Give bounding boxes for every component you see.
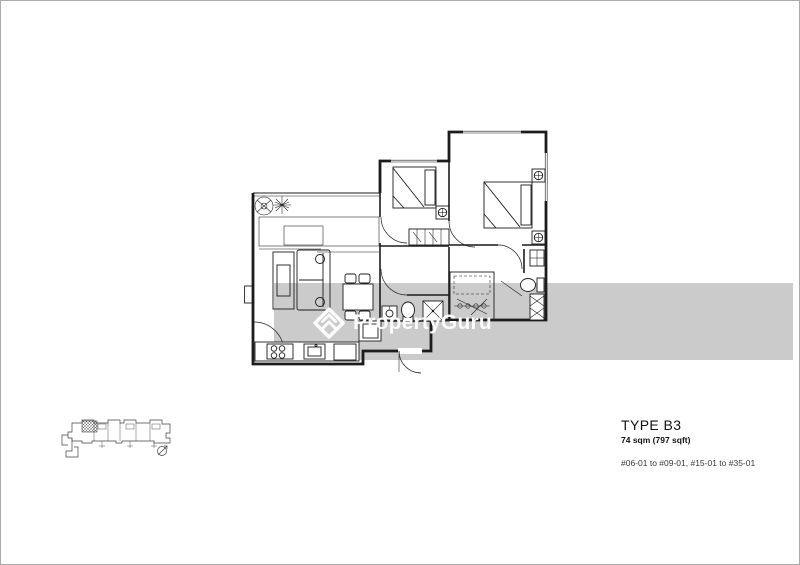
unit-floor-plan (244, 121, 558, 377)
bathroom-2 (382, 301, 443, 322)
bedside-table (532, 231, 545, 244)
bed (393, 167, 436, 208)
walk-in-wardrobe (450, 272, 494, 320)
shower-icon (530, 294, 544, 320)
chair (345, 311, 356, 320)
toilet-icon (402, 302, 415, 322)
shower-screen (501, 281, 522, 296)
dining-area (343, 274, 373, 320)
building-footprint (62, 420, 170, 457)
site-key-plan (58, 411, 178, 465)
bed (484, 182, 532, 228)
balcony (253, 193, 380, 252)
sofa (297, 250, 330, 310)
kitchen-counter (255, 342, 359, 361)
north-compass-icon (158, 446, 168, 456)
tv-console (273, 252, 294, 309)
master-bedroom (484, 169, 545, 244)
bedroom2-door-arc (381, 217, 407, 243)
chair (345, 274, 356, 283)
bedside-table (532, 169, 545, 182)
unit-location-highlight (82, 421, 97, 432)
master-door-arc (449, 221, 475, 247)
unit-info-block: TYPE B3 74 sqm (797 sqft) #06-01 to #09-… (621, 417, 800, 468)
bathroom2-door-arc (381, 269, 407, 295)
unit-area-label: 74 sqm (797 sqft) (621, 435, 800, 445)
master-bathroom (501, 250, 544, 320)
unit-type-label: TYPE B3 (621, 417, 800, 433)
entry-door-arc (399, 351, 421, 373)
plant-icon (255, 197, 273, 215)
toilet-icon (521, 278, 545, 292)
bedroom-2 (393, 167, 449, 245)
basin-icon (530, 250, 544, 266)
plant-icon (273, 196, 291, 214)
chair (359, 274, 370, 283)
living-room (254, 250, 330, 352)
unit-stack-label: #06-01 to #09-01, #15-01 to #35-01 (621, 458, 800, 468)
bedside-table (436, 206, 449, 219)
basin-icon (382, 306, 397, 320)
wardrobe (409, 229, 449, 245)
shower-icon (423, 301, 443, 321)
master-bath-door-arc (498, 245, 522, 269)
chair (359, 311, 370, 320)
floorplan-sheet: PropertyGuru TYPE B3 74 sqm (797 sqft) #… (0, 0, 800, 565)
outer-walls (245, 130, 548, 364)
dining-table (343, 284, 373, 310)
